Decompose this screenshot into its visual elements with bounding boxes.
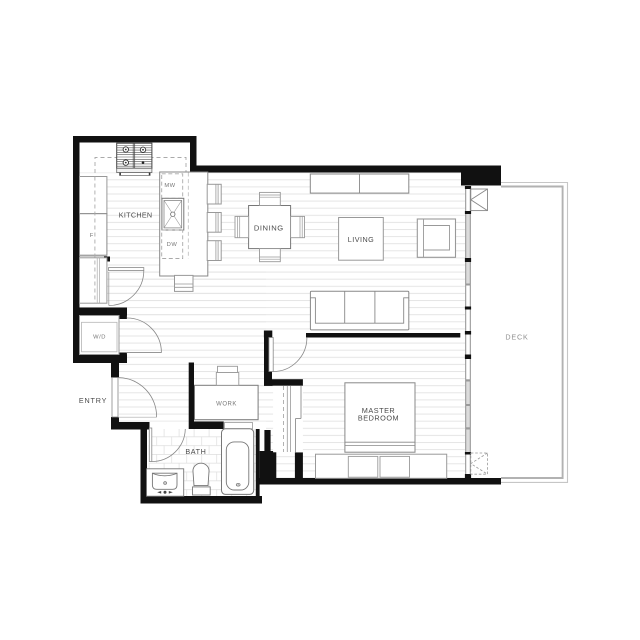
svg-text:BATH: BATH bbox=[185, 447, 206, 456]
svg-text:LIVING: LIVING bbox=[348, 235, 375, 244]
svg-text:MW: MW bbox=[164, 183, 175, 189]
svg-text:BEDROOM: BEDROOM bbox=[358, 414, 399, 423]
svg-text:ENTRY: ENTRY bbox=[79, 396, 107, 405]
svg-text:KITCHEN: KITCHEN bbox=[119, 211, 153, 220]
svg-text:DW: DW bbox=[167, 242, 178, 248]
svg-text:DECK: DECK bbox=[505, 333, 528, 342]
svg-text:DINING: DINING bbox=[254, 224, 284, 233]
svg-text:W/D: W/D bbox=[93, 335, 106, 341]
svg-text:WORK: WORK bbox=[216, 401, 237, 407]
svg-text:F: F bbox=[90, 233, 94, 239]
